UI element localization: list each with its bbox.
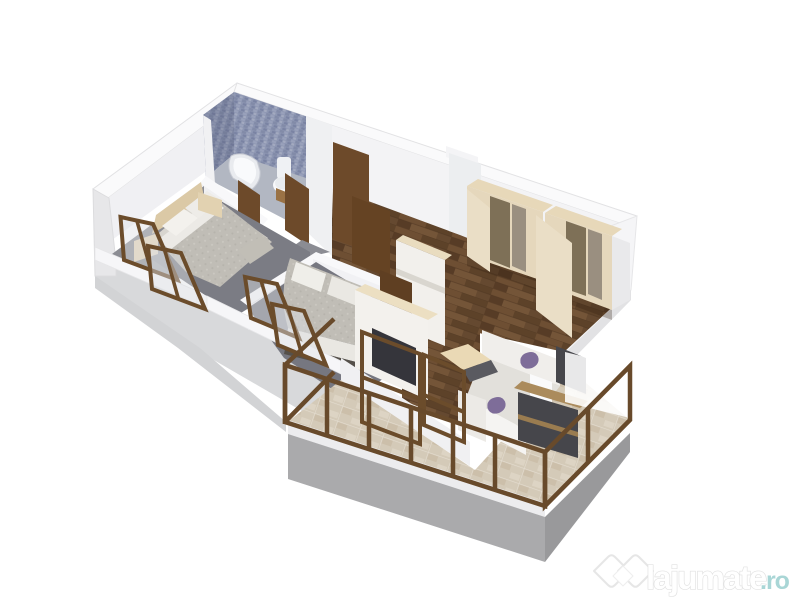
svg-text:.ro: .ro xyxy=(760,567,790,595)
svg-text:lajumate: lajumate xyxy=(646,559,767,596)
